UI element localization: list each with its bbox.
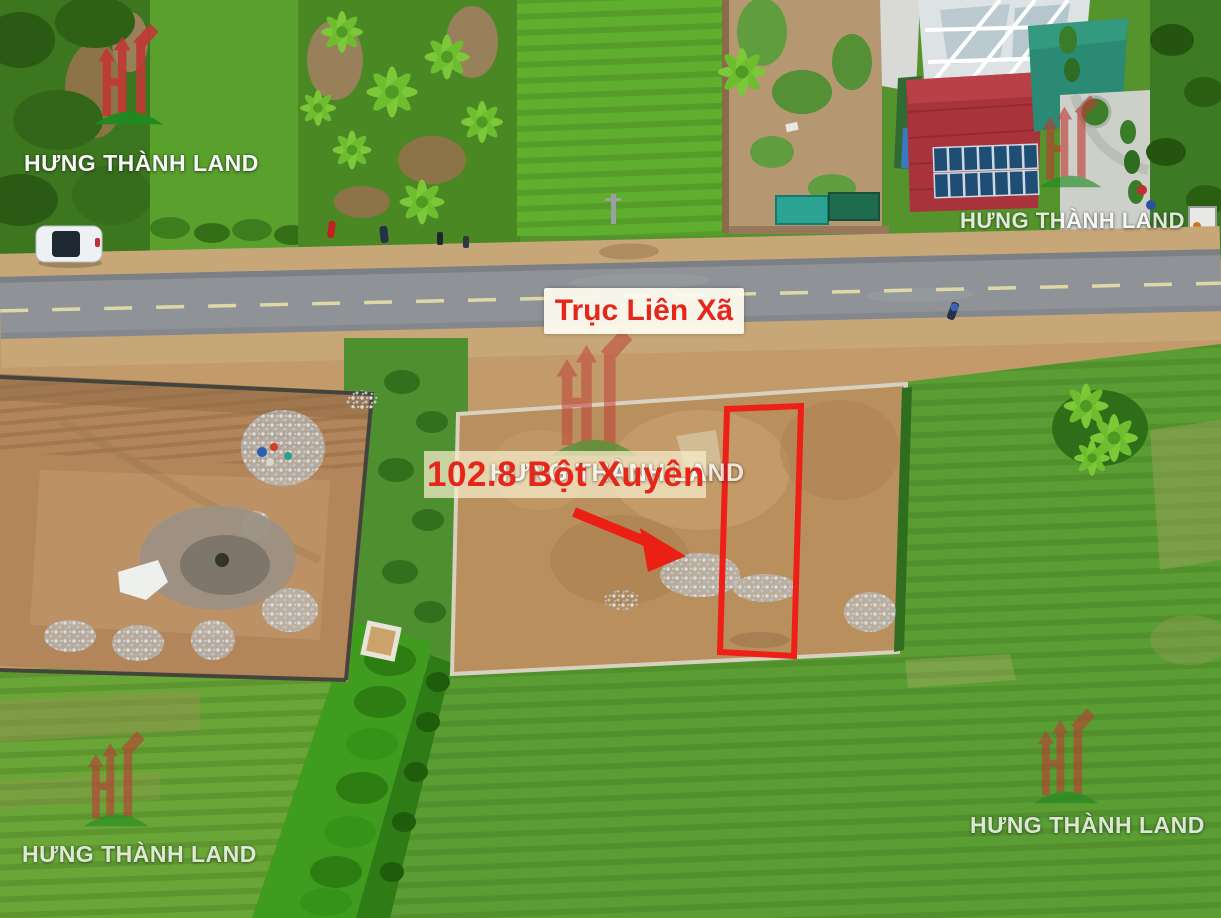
left-dirt-plot	[0, 374, 378, 682]
brand-watermark-top-right: HƯNG THÀNH LAND	[960, 208, 1156, 234]
green-tarp-shed	[829, 193, 879, 220]
person-red	[1137, 185, 1147, 195]
teal-tarp-shed	[776, 196, 828, 224]
white-frame-object	[363, 623, 399, 659]
road-name-label: Trục Liên Xã	[544, 288, 744, 334]
white-car	[36, 226, 102, 262]
motorbike-small	[437, 232, 443, 245]
motorbike-small-2	[463, 236, 469, 248]
right-dirt-plot	[452, 384, 912, 674]
brand-watermark-bottom-right: HƯNG THÀNH LAND	[970, 812, 1175, 839]
aerial-photo-page: HƯNG THÀNH LAND HƯNG THÀNH LAND HƯNG THÀ…	[0, 0, 1221, 918]
brick-wall	[722, 0, 729, 233]
brand-watermark-top-left: HƯNG THÀNH LAND	[24, 150, 234, 177]
plot-area-label: 102.8 Bột Xuyên	[427, 451, 709, 498]
brand-watermark-bottom-left: HƯNG THÀNH LAND	[22, 841, 232, 868]
well-hole	[215, 553, 229, 567]
